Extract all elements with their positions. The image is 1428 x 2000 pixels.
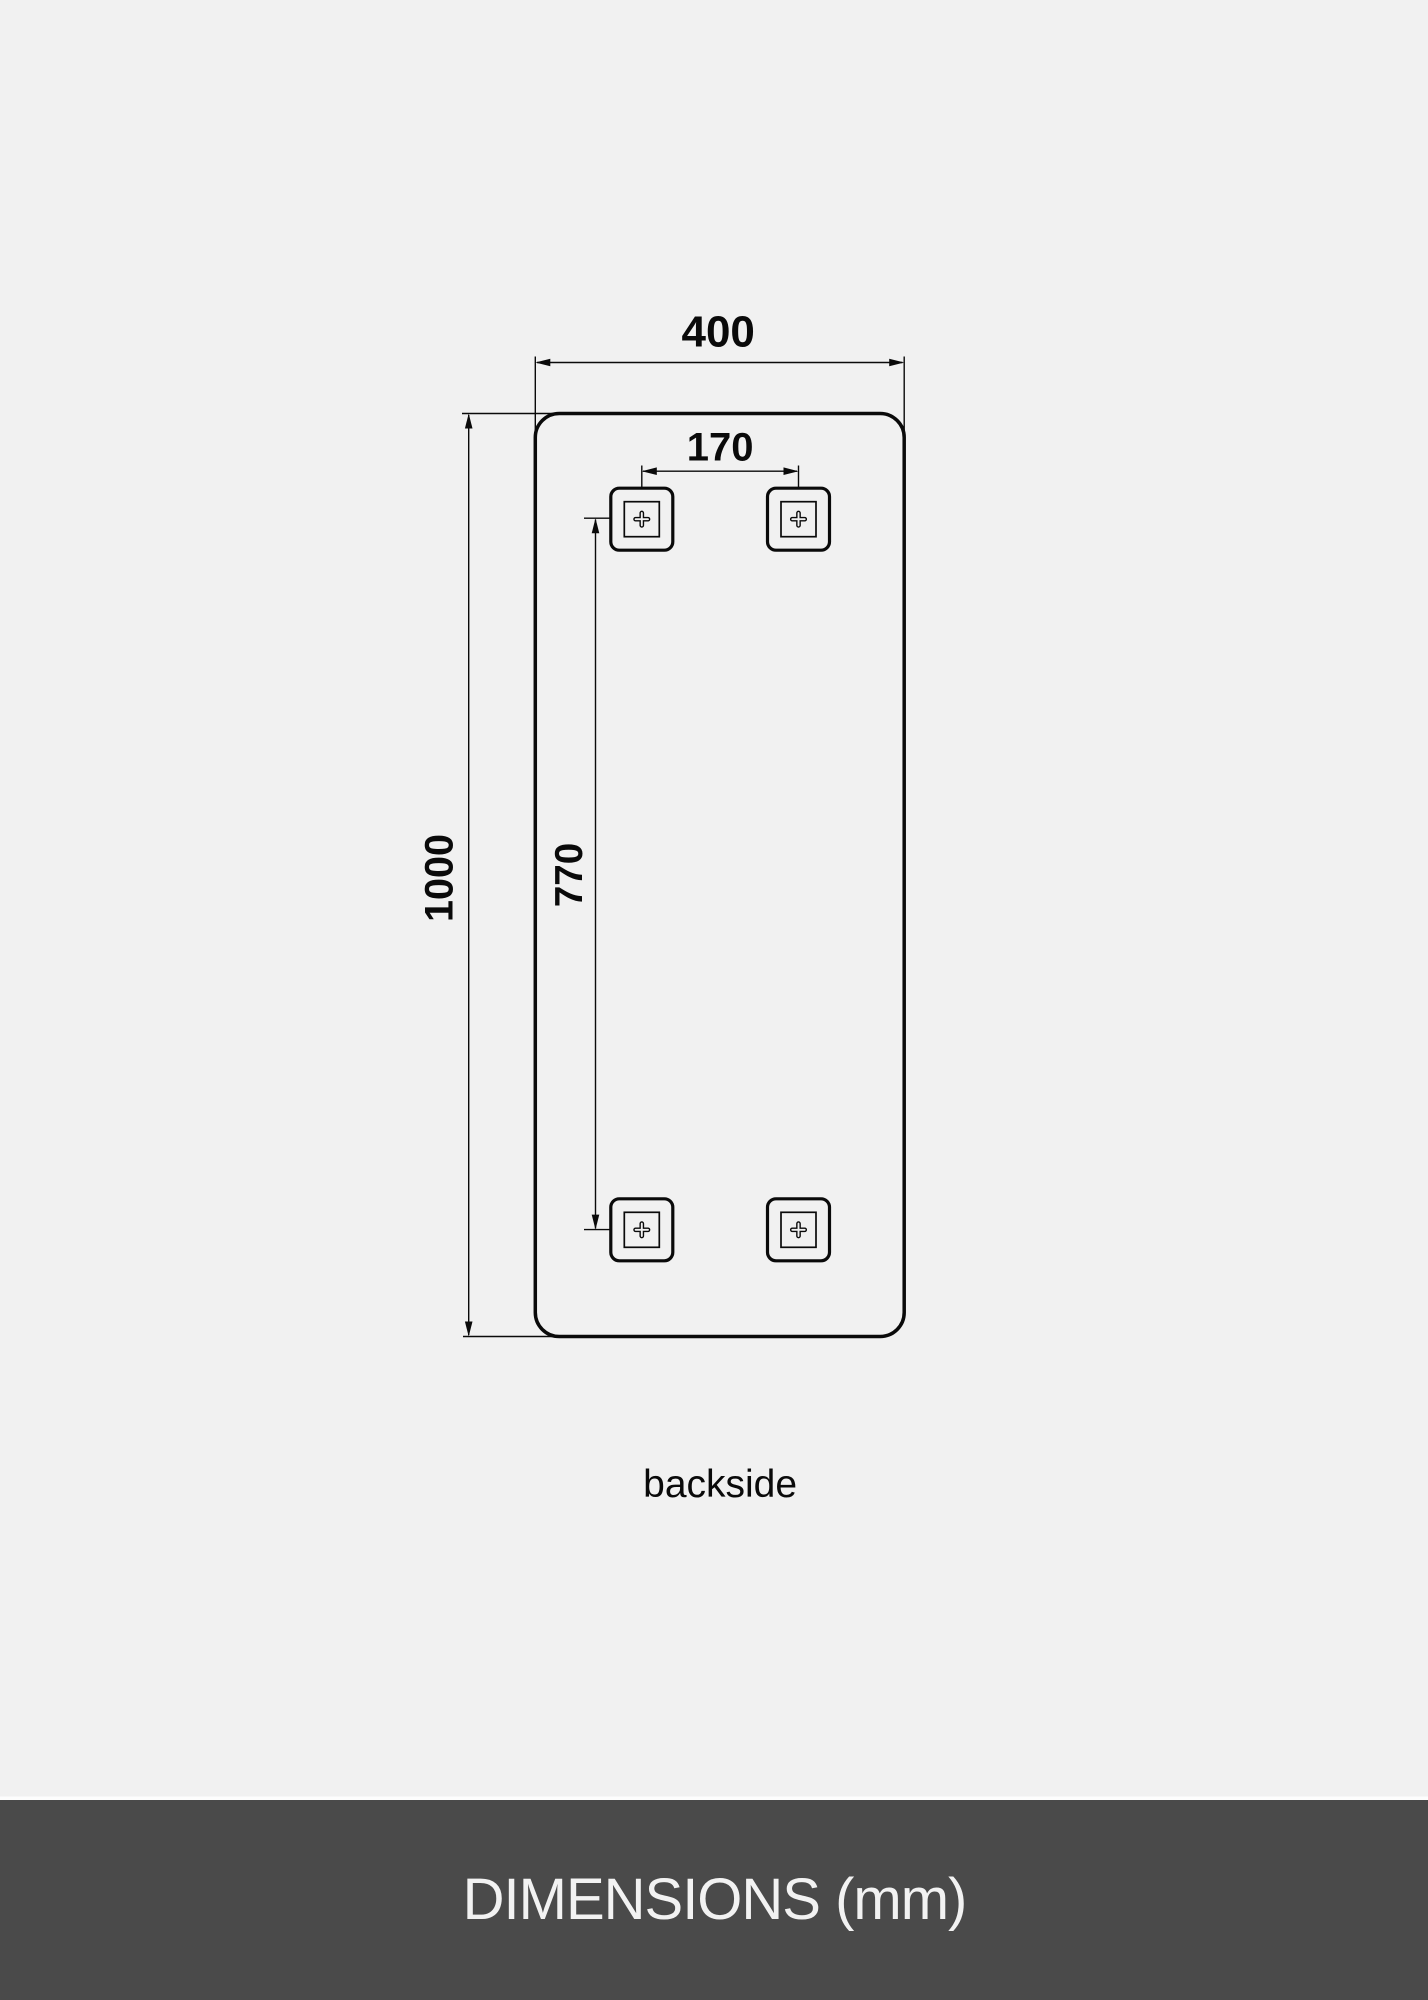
svg-text:backside: backside [643,1463,797,1506]
svg-text:400: 400 [681,308,754,357]
svg-text:170: 170 [687,425,754,469]
svg-text:DIMENSIONS (mm): DIMENSIONS (mm) [463,1867,967,1932]
svg-text:770: 770 [548,843,591,907]
svg-text:1000: 1000 [417,834,461,922]
